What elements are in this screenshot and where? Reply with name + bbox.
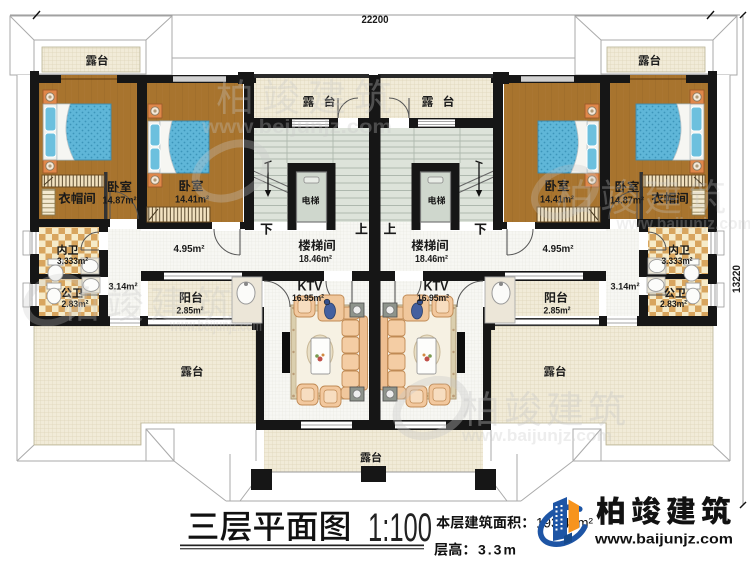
- svg-text:2.83m²: 2.83m²: [660, 299, 687, 310]
- svg-text:22200: 22200: [362, 14, 389, 26]
- svg-text:3.333m²: 3.333m²: [57, 256, 88, 267]
- svg-text:14.87m²: 14.87m²: [103, 196, 138, 207]
- svg-text:18.46m²: 18.46m²: [299, 254, 333, 265]
- svg-text:www.baijunjz.com: www.baijunjz.com: [461, 426, 612, 445]
- svg-text:www.baijunjz.com: www.baijunjz.com: [616, 214, 750, 233]
- svg-text:www.baijunjz.com: www.baijunjz.com: [594, 531, 733, 547]
- svg-text:KTV: KTV: [298, 279, 323, 294]
- svg-text:KTV: KTV: [424, 279, 449, 294]
- svg-text:3.333m²: 3.333m²: [662, 256, 693, 267]
- svg-text:www.beijunjz.com: www.beijunjz.com: [169, 316, 262, 335]
- svg-text:16.95m²: 16.95m²: [417, 293, 449, 304]
- svg-text:2.85m²: 2.85m²: [544, 306, 571, 317]
- svg-text:16.95m²: 16.95m²: [292, 293, 324, 304]
- svg-text:4.95m²: 4.95m²: [543, 243, 574, 255]
- svg-text:3.14m²: 3.14m²: [611, 282, 640, 293]
- svg-text:3.3m: 3.3m: [478, 542, 518, 558]
- svg-text:18.46m²: 18.46m²: [415, 254, 449, 265]
- svg-text:1:100: 1:100: [368, 506, 432, 550]
- svg-text:13220: 13220: [731, 265, 743, 293]
- svg-text:www.beijunjz.com: www.beijunjz.com: [201, 117, 392, 138]
- svg-text:4.95m²: 4.95m²: [174, 243, 205, 255]
